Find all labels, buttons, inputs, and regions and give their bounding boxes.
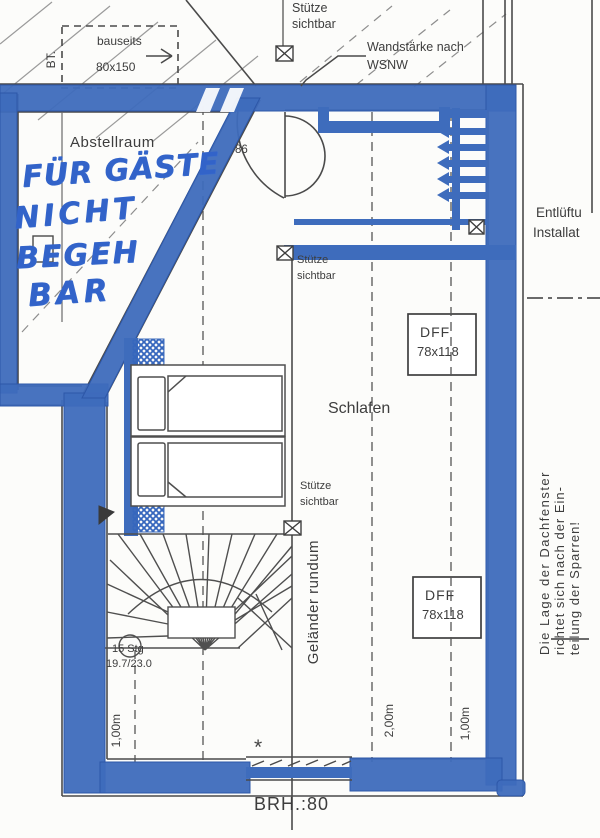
room-label-storage: Abstellraum (70, 135, 155, 150)
venting-label-1: Entlüftu (536, 206, 582, 220)
plan-linework (0, 0, 600, 838)
sill-height-label: BRH.:80 (254, 795, 329, 813)
rafter-note-line2: richtet sich nach der Ein- (553, 486, 566, 655)
wall-thickness-label-2: WSNW (367, 59, 408, 72)
support-visible-label-top-2: sichtbar (292, 18, 336, 31)
stair-risers-label: 15 Stg (112, 644, 144, 655)
wall-thickness-label-1: Wandstärke nach (367, 41, 464, 54)
wall-left-lower (64, 393, 105, 793)
pillow-2 (138, 443, 165, 496)
column-symbol (469, 220, 484, 234)
door-swing (237, 110, 325, 198)
dimension-right: 1,00m (459, 707, 471, 740)
window-sill-blue (246, 767, 352, 778)
dimension-left: 1,00m (110, 714, 122, 747)
bauseits-arrow (146, 49, 172, 63)
column-symbol (276, 46, 293, 61)
ladder-vertical (452, 108, 460, 230)
venting-label-2: Installat (533, 226, 580, 240)
door-width-label: 86 (235, 145, 248, 157)
support-visible-label-bed-1: Stütze (300, 481, 331, 492)
support-visible-label-top-1: Stütze (292, 2, 327, 15)
wall-right (486, 85, 516, 785)
pillow-1 (138, 377, 165, 430)
support-visible-label-mid-1: Stütze (297, 255, 328, 266)
wall-right-foot (497, 780, 525, 796)
wall-thickness-leader (301, 56, 366, 86)
column-symbol (277, 246, 293, 260)
wall-bottom-right (350, 758, 502, 791)
floor-plan: Stütze sichtbar Wandstärke nach WSNW bau… (0, 0, 600, 838)
dff-lower-size: 78x118 (422, 608, 464, 621)
wall-bottom-left (100, 762, 250, 793)
duct-bottom (318, 121, 450, 133)
beds (131, 365, 285, 506)
bt-label: BT. (45, 51, 57, 68)
ladder-arrow-bars (437, 124, 487, 202)
railing-label: Geländer rundum (306, 540, 321, 664)
rafter-note-line1: Die Lage der Dachfenster (538, 471, 551, 655)
staircase (105, 534, 292, 657)
mattress-1 (168, 376, 282, 431)
dff-upper-size: 78x118 (417, 345, 459, 358)
dimension-middle: 2,00m (383, 704, 395, 737)
dff-lower-type: DFF (425, 588, 455, 602)
mattress-2 (168, 443, 282, 497)
rafter-note-line3: teilung der Sparren! (568, 521, 581, 655)
room-label-bedroom: Schlafen (328, 401, 390, 417)
stair-well (168, 607, 235, 638)
rafter-note: Die Lage der Dachfenster richtet sich na… (538, 415, 581, 655)
asterisk-mark: * (254, 737, 262, 758)
handwritten-note-line4: BAR (27, 275, 112, 312)
stair-ratio-label: 19.7/23.0 (106, 659, 152, 670)
support-visible-label-mid-2: sichtbar (297, 271, 336, 282)
column-symbol (284, 521, 301, 535)
handwritten-note-line3: BEGEH (15, 238, 140, 274)
bauseits-label: bauseits (97, 35, 142, 47)
dff-upper-type: DFF (420, 325, 450, 339)
bauseits-size-label: 80x150 (96, 61, 135, 73)
support-visible-label-bed-2: sichtbar (300, 497, 339, 508)
ladder-top-bar (441, 110, 487, 118)
